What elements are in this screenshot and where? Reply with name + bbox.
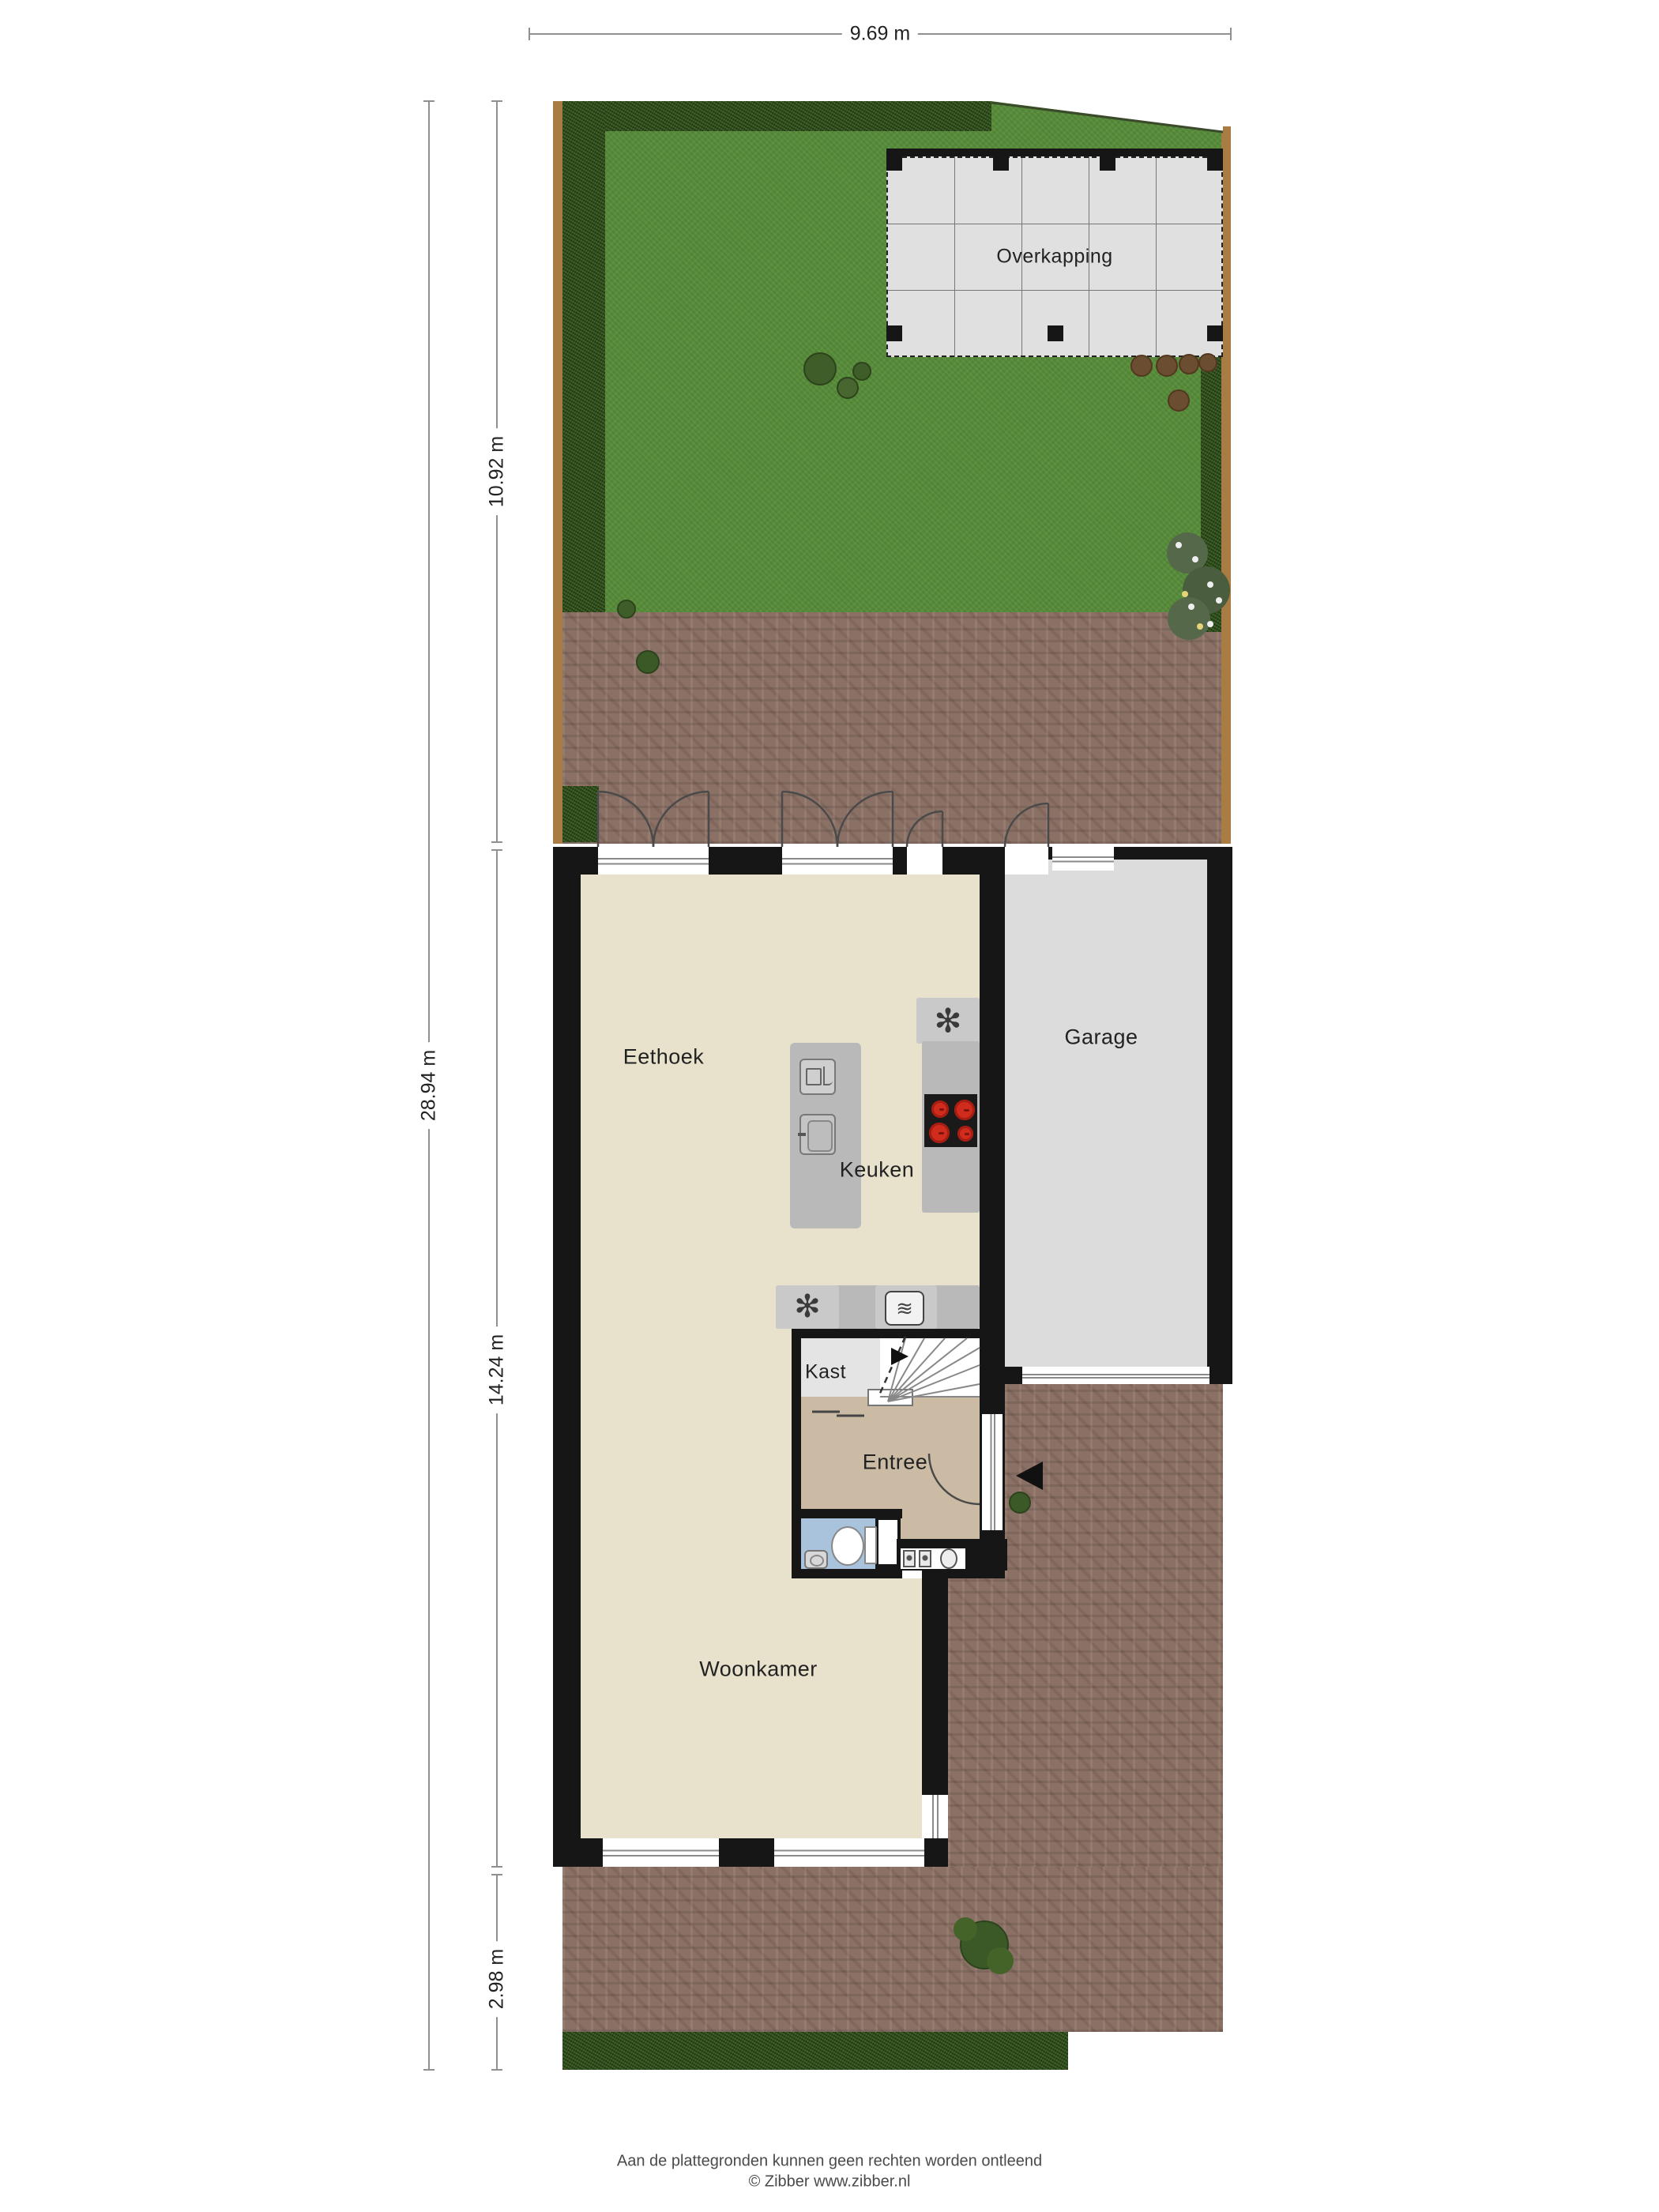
stairs-treads: [880, 1338, 980, 1401]
plan-linework: [0, 0, 1659, 2212]
room-label-woonkamer: Woonkamer: [699, 1657, 818, 1682]
flower-bushes-icon: [1167, 532, 1230, 640]
footer-disclaimer: Aan de plattegronden kunnen geen rechten…: [617, 2153, 1042, 2171]
room-label-kast: Kast: [805, 1361, 846, 1384]
room-label-entree: Entree: [863, 1450, 928, 1475]
door-swing-arcs: [598, 792, 1048, 1504]
garden-shrubs-brown-icon: [1131, 354, 1217, 411]
room-label-eethoek: Eethoek: [623, 1045, 705, 1070]
room-label-overkapping: Overkapping: [996, 246, 1112, 269]
garden-bushes-icon: [618, 353, 871, 673]
dimension-top-width: 9.69 m: [842, 21, 918, 47]
front-bushes-icon: [954, 1492, 1030, 1974]
entrance-arrow-icon: [1016, 1461, 1043, 1490]
dimension-total-depth: 28.94 m: [416, 1042, 442, 1129]
floor-plan-page: ✻ ✻ ≋: [0, 0, 1659, 2212]
sliding-door-symbol: [812, 1412, 864, 1416]
footer-copyright: © Zibber www.zibber.nl: [749, 2173, 911, 2191]
front-door-swing: [929, 1454, 980, 1504]
room-label-keuken: Keuken: [840, 1158, 915, 1183]
dimension-front-depth: 2.98 m: [484, 1941, 510, 2017]
dimension-garden-depth: 10.92 m: [484, 428, 510, 515]
dimension-house-depth: 14.24 m: [484, 1326, 510, 1413]
room-label-garage: Garage: [1064, 1025, 1138, 1050]
